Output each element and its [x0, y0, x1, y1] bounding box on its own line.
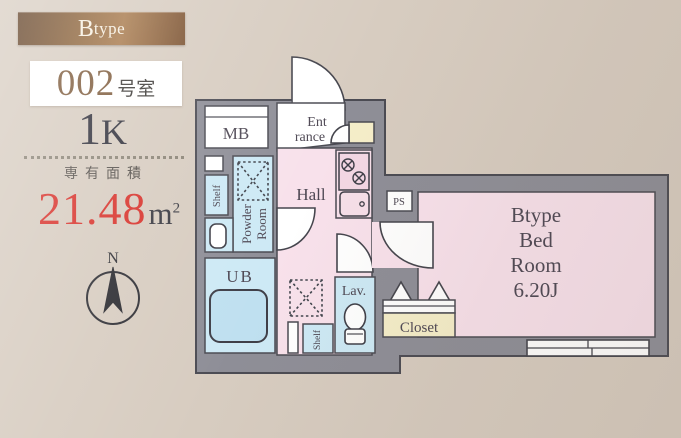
mb-label: MB: [223, 124, 249, 143]
svg-text:Room: Room: [510, 253, 561, 277]
layout-type: 1K: [0, 104, 205, 154]
toilet-icon: [345, 304, 366, 344]
room-number-box: 002 号室: [30, 61, 182, 106]
stove-unit: [339, 153, 369, 190]
bathtub-icon: [210, 290, 267, 342]
entrance-label-line2: rance: [295, 130, 325, 145]
area-caption: 専有面積: [0, 163, 205, 183]
niche: [288, 322, 298, 353]
shoe-box: [349, 122, 374, 143]
ps-label: PS: [393, 197, 405, 208]
entrance-label-line1: Ent: [307, 115, 327, 130]
room-number: 002: [57, 63, 116, 105]
area-value-line: 21.48 m2: [0, 184, 218, 236]
window-icon: [527, 340, 649, 356]
info-panel: Btype 002 号室 1K 専有面積 21.48 m2: [0, 0, 205, 438]
hall-label: Hall: [296, 185, 326, 204]
powder-label-line2: Room: [254, 208, 269, 240]
type-badge: Btype: [18, 12, 185, 45]
area-unit: m2: [148, 196, 180, 232]
floorplan-sheet: MB Ent rance Hall PS Shelf Powder Room U…: [0, 0, 681, 438]
lavatory-label: Lav.: [342, 284, 366, 299]
dotted-separator: [24, 156, 184, 159]
type-badge-initial: B: [78, 17, 94, 41]
svg-text:6.20J: 6.20J: [514, 278, 559, 302]
powder-label-line1: Powder: [239, 203, 254, 243]
entrance-door-swing: [292, 57, 345, 110]
area-value: 21.48: [38, 184, 147, 234]
svg-text:Btype: Btype: [511, 203, 561, 227]
room-number-suffix: 号室: [117, 74, 155, 101]
ub-label: UB: [226, 267, 254, 286]
store-box: [205, 156, 223, 171]
shelf-lower-label: Shelf: [312, 329, 323, 350]
bedroom-label: Btype Bed Room 6.20J: [510, 203, 561, 302]
type-badge-rest: type: [94, 20, 125, 37]
closet-label: Closet: [400, 320, 439, 336]
svg-text:Bed: Bed: [519, 228, 553, 252]
